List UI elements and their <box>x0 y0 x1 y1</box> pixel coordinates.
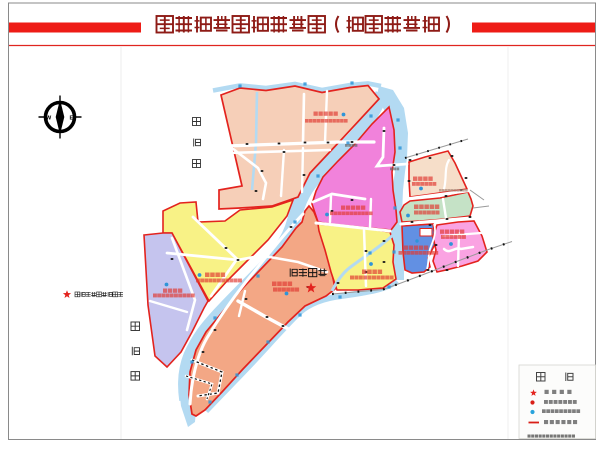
svg-text:E: E <box>70 116 74 122</box>
svg-text:W: W <box>46 116 52 122</box>
